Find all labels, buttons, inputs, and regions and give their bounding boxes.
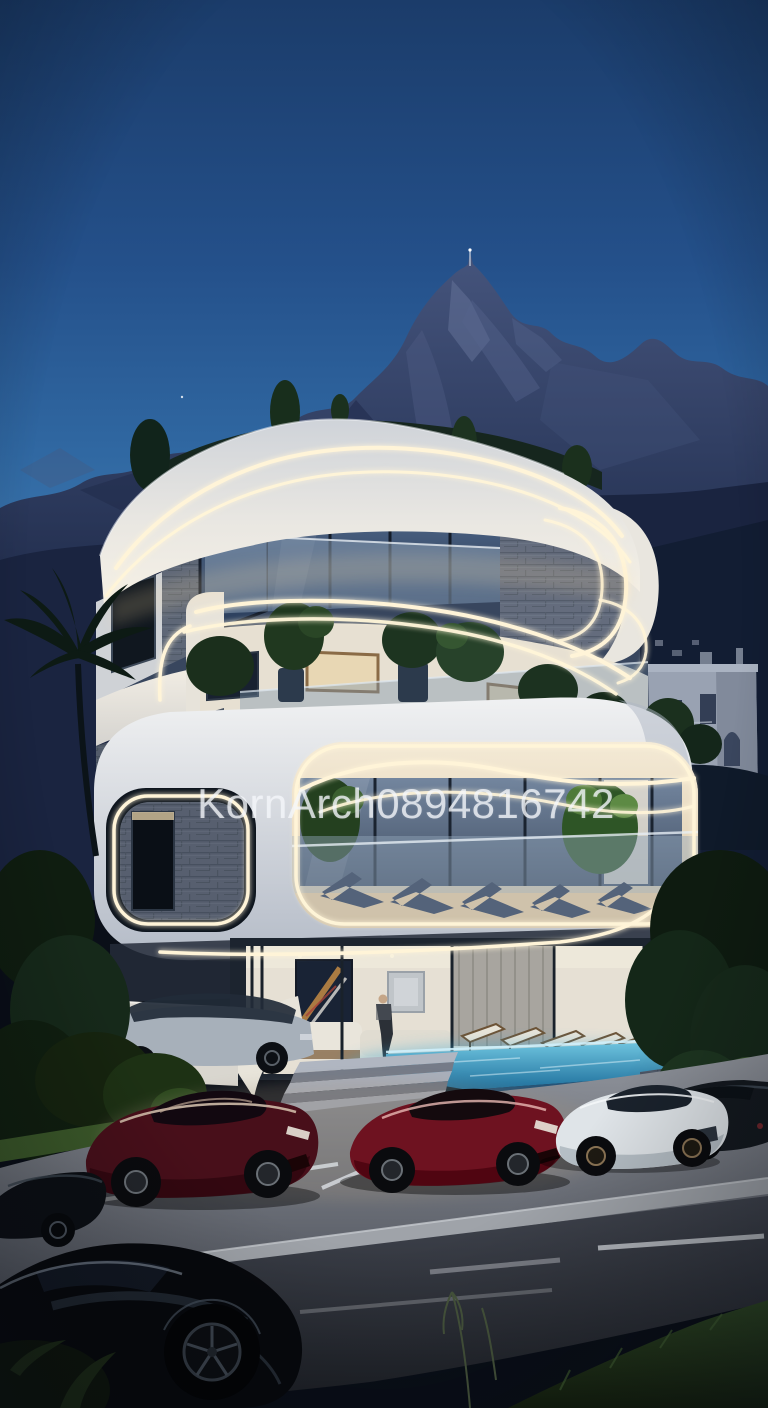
architectural-render: KornArch0894816742 xyxy=(0,0,768,1408)
scene-canvas xyxy=(0,0,768,1408)
vignette xyxy=(0,0,768,1408)
